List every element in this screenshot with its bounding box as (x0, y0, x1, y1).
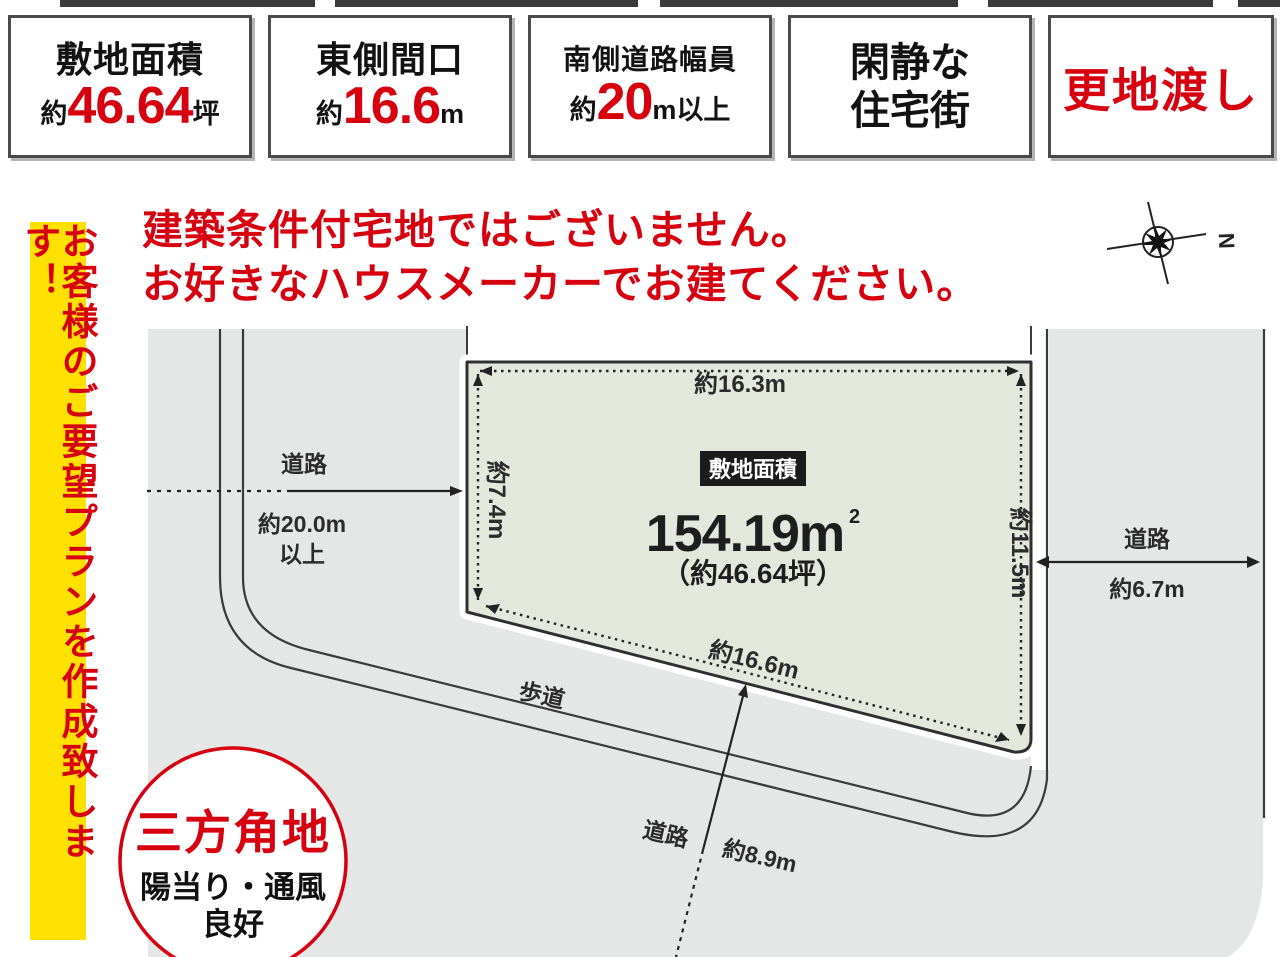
compass-north-label: N (1214, 232, 1240, 249)
east-road-outside (1264, 326, 1280, 818)
corner-lot-sub2: 良好 (202, 907, 264, 942)
west-road-label: 道路 (281, 451, 328, 477)
east-road-width: 約6.7m (1109, 576, 1184, 602)
east-road-label: 道路 (1124, 526, 1171, 552)
dim-top-label: 約16.3m (694, 370, 786, 398)
west-road-width1: 約20.0m (258, 511, 346, 537)
site-plan-diagram: 約16.3m 約7.4m 約11.5m 約16.6m 敷地面積 154.19m … (0, 0, 1280, 957)
area-value: 154.19m (646, 505, 844, 563)
west-road-width2: 以上 (279, 541, 325, 567)
compass-icon: N (1107, 202, 1239, 284)
area-badge-label: 敷地面積 (709, 457, 798, 482)
corner-lot-title: 三方角地 (135, 806, 331, 859)
area-tsubo: （約46.64坪） (662, 557, 844, 589)
corner-lot-sub1: 陽当り・通風 (140, 870, 326, 905)
flyer-page: 敷地面積 約46.64坪 東側間口 約16.6m 南側道路幅員 約20m以上 閑… (0, 0, 1280, 957)
area-superscript: 2 (849, 506, 860, 528)
dim-right-label: 約11.5m (1006, 508, 1034, 599)
corner-lot-badge: 三方角地 陽当り・通風 良好 (120, 748, 346, 957)
dim-left-label: 約7.4m (483, 461, 511, 540)
